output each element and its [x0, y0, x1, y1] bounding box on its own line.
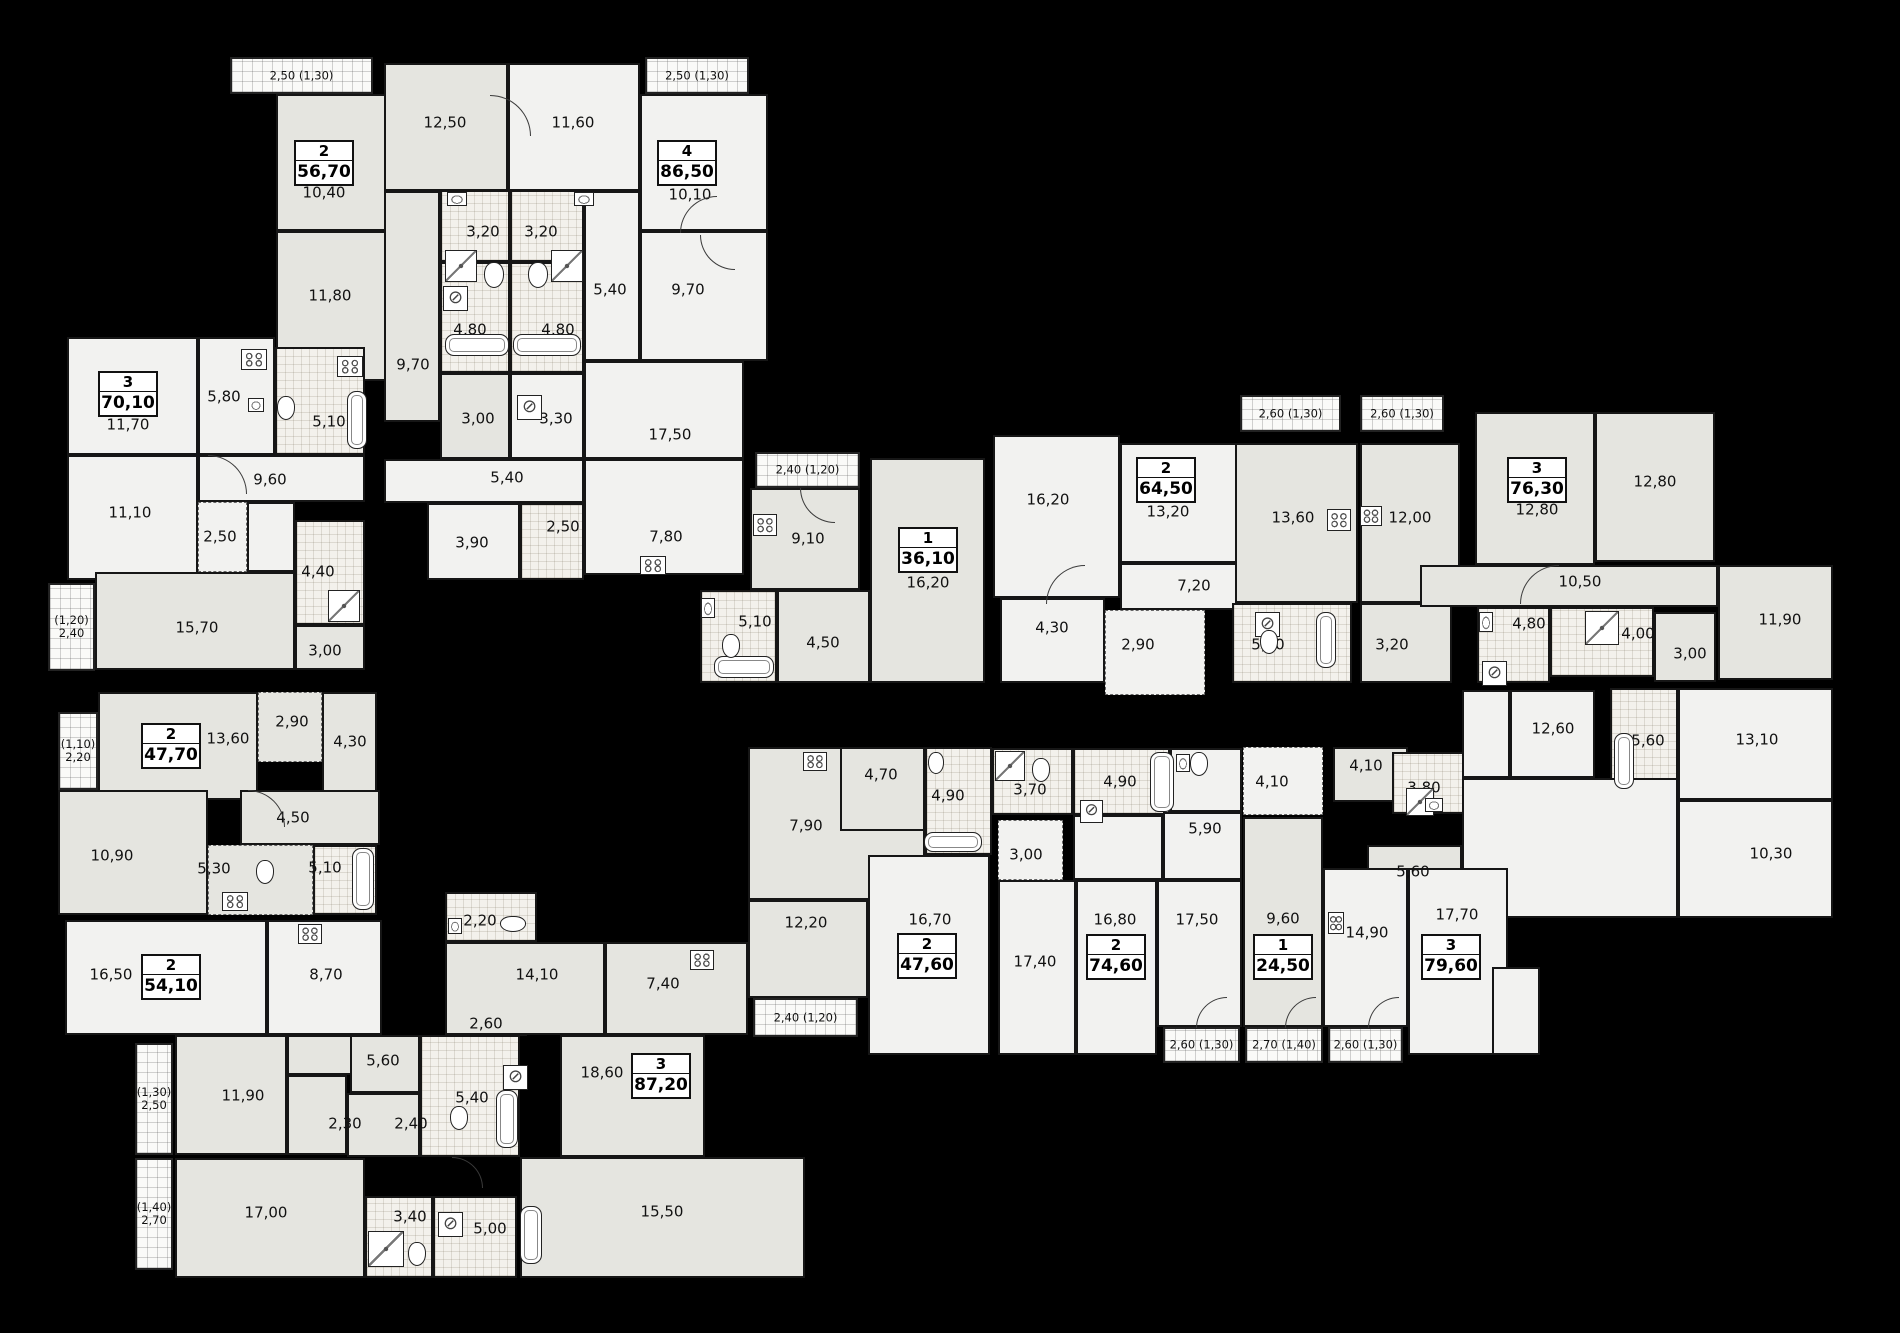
balcony-area-label: 2,50 (1,30) [665, 69, 729, 82]
room-area-label: 13,20 [1147, 503, 1190, 520]
room-area-label: 16,20 [1027, 491, 1070, 508]
toilet-icon [484, 262, 504, 288]
toilet-icon [722, 634, 740, 658]
room-area-label: 9,70 [671, 281, 704, 298]
apartment-total-area: 24,50 [1255, 955, 1311, 978]
room-area-label: 3,20 [1375, 636, 1408, 653]
room-area-label: 7,20 [1177, 577, 1210, 594]
room [584, 191, 640, 361]
room-area-label: 14,10 [516, 966, 559, 983]
room-area-label: 4,30 [333, 733, 366, 750]
apartment-badge: 256,70 [294, 140, 354, 186]
toilet-icon [1260, 630, 1278, 654]
stove-icon [241, 349, 267, 370]
stove-icon [753, 514, 777, 536]
apartment-badge: 136,10 [898, 527, 958, 573]
room-area-label: 3,00 [461, 410, 494, 427]
room-area-label: 12,80 [1634, 473, 1677, 490]
apartment-total-area: 74,60 [1088, 955, 1144, 978]
balcony-area-label: (1,30) 2,50 [137, 1086, 172, 1112]
room-area-label: 5,60 [1631, 732, 1664, 749]
apartment-total-area: 56,70 [296, 161, 352, 184]
room-area-label: 4,50 [806, 634, 839, 651]
room-area-label: 11,10 [109, 504, 152, 521]
room-area-label: 3,00 [308, 642, 341, 659]
apartment-total-area: 86,50 [659, 161, 715, 184]
room-area-label: 4,10 [1255, 773, 1288, 790]
room-area-label: 2,60 [469, 1015, 502, 1032]
room-area-label: 2,40 [394, 1115, 427, 1132]
stove-icon [640, 556, 666, 575]
room-area-label: 17,50 [1176, 911, 1219, 928]
balcony-area-label: 2,40 (1,20) [774, 1011, 838, 1024]
room [1073, 815, 1163, 880]
room-area-label: 9,60 [253, 471, 286, 488]
floor-plan-canvas: 2,50 (1,30)2,50 (1,30)(1,20) 2,40(1,10) … [0, 0, 1900, 1333]
toilet-icon [1190, 752, 1208, 776]
toilet-icon [1032, 758, 1050, 782]
room-area-label: 7,90 [789, 817, 822, 834]
tub-icon [352, 848, 374, 910]
room-area-label: 10,50 [1559, 573, 1602, 590]
stove-icon [337, 356, 363, 377]
apartment-total-area: 87,20 [633, 1074, 689, 1097]
room-area-label: 13,10 [1736, 731, 1779, 748]
room-area-label: 9,70 [396, 356, 429, 373]
balcony-area-label: 2,40 (1,20) [776, 463, 840, 476]
apartment-badge: 379,60 [1421, 934, 1481, 980]
room-area-label: 17,50 [649, 426, 692, 443]
room [1105, 610, 1205, 695]
apartment-badge: 486,50 [657, 140, 717, 186]
room [993, 435, 1120, 598]
room-area-label: 2,30 [328, 1115, 361, 1132]
apartment-total-area: 79,60 [1423, 955, 1479, 978]
apartment-badge: 124,50 [1253, 934, 1313, 980]
balcony-area-label: (1,40) 2,70 [137, 1201, 172, 1227]
apartment-total-area: 54,10 [143, 975, 199, 998]
apartment-total-area: 47,70 [143, 744, 199, 767]
balcony-area-label: 2,60 (1,30) [1170, 1038, 1234, 1051]
room-area-label: 5,80 [207, 388, 240, 405]
room-area-label: 3,70 [1013, 781, 1046, 798]
toilet-icon [500, 916, 526, 932]
apartment-total-area: 36,10 [900, 548, 956, 571]
sink-icon [447, 192, 467, 206]
room-area-label: 12,80 [1516, 501, 1559, 518]
room [840, 747, 925, 831]
room-area-label: 11,70 [107, 416, 150, 433]
room-area-label: 11,80 [309, 287, 352, 304]
stove-icon [1328, 912, 1344, 934]
room-area-label: 4,90 [1103, 773, 1136, 790]
stove-icon [298, 924, 322, 944]
shower-icon [995, 751, 1025, 781]
room-area-label: 4,30 [1035, 619, 1068, 636]
room-area-label: 9,60 [1266, 910, 1299, 927]
apartment-badge: 370,10 [98, 371, 158, 417]
apartment-badge: 376,30 [1507, 457, 1567, 503]
shower-icon [445, 250, 477, 282]
room-area-label: 3,90 [455, 534, 488, 551]
toilet-icon [528, 262, 548, 288]
apartment-rooms-count: 2 [1138, 459, 1194, 478]
tub-icon [445, 334, 509, 356]
balcony-area-label: (1,20) 2,40 [54, 614, 89, 640]
room-area-label: 4,40 [301, 563, 334, 580]
balcony-area-label: (1,10) 2,20 [61, 738, 96, 764]
tub-icon [496, 1090, 518, 1148]
apartment-total-area: 47,60 [899, 954, 955, 977]
room [520, 503, 584, 580]
apartment-rooms-count: 1 [1255, 936, 1311, 955]
room [1492, 967, 1540, 1055]
room-area-label: 11,60 [552, 114, 595, 131]
room-area-label: 12,00 [1389, 509, 1432, 526]
tub-icon [1614, 733, 1634, 789]
apartment-badge: 247,60 [897, 933, 957, 979]
room-area-label: 15,70 [176, 619, 219, 636]
apartment-rooms-count: 2 [1088, 936, 1144, 955]
room-area-label: 7,40 [646, 975, 679, 992]
room-area-label: 17,70 [1436, 906, 1479, 923]
apartment-total-area: 70,10 [100, 392, 156, 415]
room-area-label: 3,00 [1009, 846, 1042, 863]
room-area-label: 3,20 [524, 223, 557, 240]
room-area-label: 3,40 [393, 1208, 426, 1225]
room-area-label: 16,20 [907, 574, 950, 591]
room-area-label: 5,90 [1188, 820, 1221, 837]
toilet-icon [256, 860, 274, 884]
room-area-label: 5,10 [308, 859, 341, 876]
apartment-badge: 264,50 [1136, 457, 1196, 503]
washer-icon: ⊘ [517, 395, 542, 420]
tub-icon [1150, 752, 1174, 812]
sink-icon [701, 598, 715, 618]
room [247, 502, 295, 572]
room-area-label: 5,00 [473, 1220, 506, 1237]
sink-icon [1176, 754, 1190, 772]
room-area-label: 16,50 [90, 966, 133, 983]
apartment-rooms-count: 3 [1509, 459, 1565, 478]
apartment-rooms-count: 2 [143, 956, 199, 975]
room-area-label: 15,50 [641, 1203, 684, 1220]
apartment-badge: 247,70 [141, 723, 201, 769]
room-area-label: 3,30 [539, 410, 572, 427]
room-area-label: 10,30 [1750, 845, 1793, 862]
washer-icon: ⊘ [438, 1212, 463, 1237]
apartment-badge: 387,20 [631, 1053, 691, 1099]
toilet-icon [928, 752, 944, 774]
tub-icon [714, 656, 774, 678]
room-area-label: 5,10 [312, 413, 345, 430]
room-area-label: 4,70 [864, 766, 897, 783]
apartment-rooms-count: 4 [659, 142, 715, 161]
shower-icon [551, 250, 583, 282]
room-area-label: 11,90 [222, 1087, 265, 1104]
tub-icon [924, 832, 982, 852]
room-area-label: 10,90 [91, 847, 134, 864]
washer-icon: ⊘ [503, 1065, 528, 1090]
apartment-rooms-count: 2 [296, 142, 352, 161]
room-area-label: 12,50 [424, 114, 467, 131]
tub-icon [513, 334, 581, 356]
balcony-area-label: 2,50 (1,30) [270, 69, 334, 82]
room [584, 361, 744, 459]
room-area-label: 11,90 [1759, 611, 1802, 628]
room-area-label: 13,60 [1272, 509, 1315, 526]
apartment-total-area: 64,50 [1138, 478, 1194, 501]
room [1462, 690, 1510, 778]
tub-icon [347, 391, 367, 449]
tub-icon [520, 1206, 542, 1264]
stove-icon [1360, 506, 1382, 526]
sink-icon [1479, 612, 1493, 632]
apartment-badge: 274,60 [1086, 934, 1146, 980]
room-area-label: 2,90 [275, 713, 308, 730]
apartment-rooms-count: 2 [143, 725, 199, 744]
room-area-label: 10,40 [303, 184, 346, 201]
room-area-label: 8,70 [309, 966, 342, 983]
balcony-area-label: 2,70 (1,40) [1252, 1038, 1316, 1051]
room-area-label: 17,40 [1014, 953, 1057, 970]
room-area-label: 16,80 [1094, 911, 1137, 928]
apartment-rooms-count: 3 [633, 1055, 689, 1074]
apartment-badge: 254,10 [141, 954, 201, 1000]
room-area-label: 12,60 [1532, 720, 1575, 737]
room-area-label: 12,20 [785, 914, 828, 931]
sink-icon [1425, 798, 1443, 812]
sink-icon [248, 398, 264, 412]
room-area-label: 4,10 [1349, 757, 1382, 774]
washer-icon: ⊘ [1482, 661, 1507, 686]
room [1000, 598, 1105, 683]
tub-icon [1316, 612, 1336, 668]
shower-icon [368, 1231, 404, 1267]
stove-icon [1327, 509, 1351, 531]
room-area-label: 5,40 [490, 469, 523, 486]
stove-icon [690, 950, 714, 970]
room-area-label: 5,60 [366, 1052, 399, 1069]
room-area-label: 4,90 [931, 787, 964, 804]
room-area-label: 17,00 [245, 1204, 288, 1221]
toilet-icon [408, 1242, 426, 1266]
room-area-label: 9,10 [791, 530, 824, 547]
room [1157, 880, 1242, 1027]
room [384, 459, 584, 503]
room-area-label: 3,00 [1673, 645, 1706, 662]
stove-icon [803, 752, 827, 771]
room-area-label: 7,80 [649, 528, 682, 545]
room-area-label: 5,60 [1396, 863, 1429, 880]
room-area-label: 2,50 [203, 528, 236, 545]
room-area-label: 5,30 [197, 860, 230, 877]
room-area-label: 4,80 [1512, 615, 1545, 632]
room-area-label: 2,90 [1121, 636, 1154, 653]
apartment-rooms-count: 3 [1423, 936, 1479, 955]
room-area-label: 5,40 [455, 1089, 488, 1106]
apartment-rooms-count: 3 [100, 373, 156, 392]
balcony-area-label: 2,60 (1,30) [1334, 1038, 1398, 1051]
shower-icon [328, 590, 360, 622]
room-area-label: 14,90 [1346, 924, 1389, 941]
sink-icon [574, 192, 594, 206]
toilet-icon [450, 1106, 468, 1130]
door-swing-arc [452, 1157, 483, 1188]
room-area-label: 5,10 [738, 613, 771, 630]
toilet-icon [277, 396, 295, 420]
balcony-area-label: 2,60 (1,30) [1370, 407, 1434, 420]
stove-icon [222, 892, 248, 911]
shower-icon [1585, 611, 1619, 645]
washer-icon: ⊘ [1080, 800, 1103, 823]
room-area-label: 18,60 [581, 1064, 624, 1081]
room-area-label: 5,40 [593, 281, 626, 298]
room-area-label: 13,60 [207, 730, 250, 747]
apartment-total-area: 76,30 [1509, 478, 1565, 501]
apartment-rooms-count: 1 [900, 529, 956, 548]
room-area-label: 4,00 [1621, 625, 1654, 642]
room-area-label: 2,20 [463, 912, 496, 929]
washer-icon: ⊘ [443, 286, 468, 311]
room-area-label: 16,70 [909, 911, 952, 928]
room-area-label: 3,20 [466, 223, 499, 240]
room [384, 191, 440, 422]
room-area-label: 2,50 [546, 518, 579, 535]
balcony-area-label: 2,60 (1,30) [1259, 407, 1323, 420]
apartment-rooms-count: 2 [899, 935, 955, 954]
sink-icon [448, 918, 462, 934]
